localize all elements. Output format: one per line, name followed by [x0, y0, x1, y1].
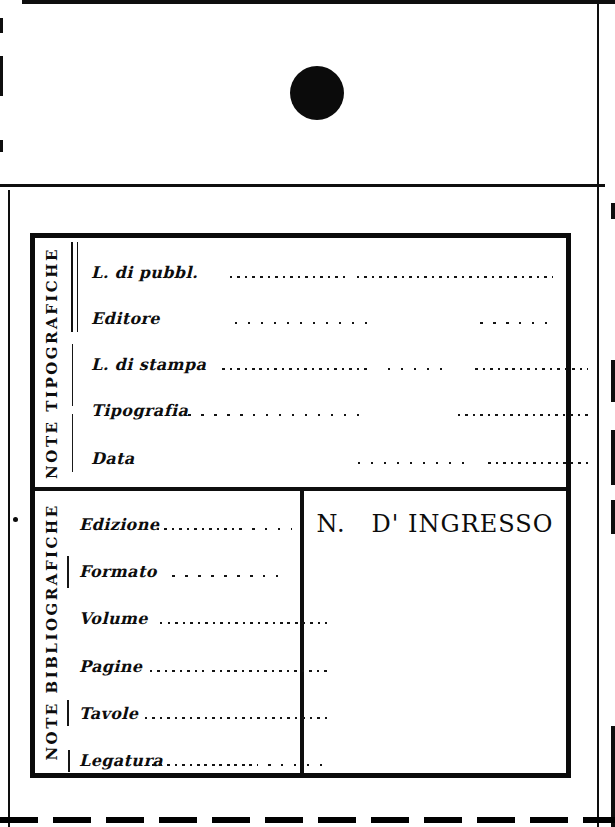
field-label-volume: Volume [79, 609, 148, 628]
field-label-tipografia: Tipografia [91, 401, 188, 420]
right-edge-mark [611, 726, 615, 827]
dotted-leader [358, 461, 468, 464]
scanned-catalog-card-page: NOTE TIPOGRAFICHE L. di pubbl. Editore L… [0, 0, 615, 827]
right-edge-mark [611, 203, 615, 219]
dotted-leader [188, 413, 365, 416]
left-edge-mark [0, 140, 3, 152]
dotted-leader [458, 413, 588, 416]
numero-ingresso-heading: N. D' INGRESSO [305, 510, 565, 538]
bottom-edge-tear-line [0, 817, 615, 823]
dotted-leader [235, 321, 378, 324]
dotted-leader [145, 716, 327, 719]
field-label-legatura: Legatura [79, 751, 163, 770]
dotted-leader [230, 275, 347, 278]
field-label-tavole: Tavole [79, 704, 138, 723]
right-edge-mark [611, 430, 615, 485]
rule-fragment [68, 750, 70, 772]
dotted-leader [357, 275, 553, 278]
dotted-leader [475, 367, 588, 370]
column-divider-line [300, 491, 304, 773]
dotted-leader [222, 367, 372, 370]
dotted-leader [488, 461, 588, 464]
dotted-leader [212, 669, 327, 672]
catalog-card: NOTE TIPOGRAFICHE L. di pubbl. Editore L… [30, 233, 571, 778]
ink-speck [13, 517, 18, 522]
double-rule-segment [72, 344, 75, 406]
dotted-leader [150, 669, 204, 672]
rule-fragment [67, 556, 69, 588]
double-rule [71, 242, 78, 332]
field-label-luogo-stampa: L. di stampa [91, 355, 206, 374]
horizontal-rule [0, 184, 605, 187]
double-rule-segment [72, 414, 74, 472]
dotted-leader [152, 763, 258, 766]
punch-hole [290, 66, 344, 120]
left-page-edge-line [8, 190, 10, 827]
dotted-leader [268, 763, 327, 766]
section-side-label: NOTE BIBLIOGRAFICHE [43, 503, 61, 760]
side-label-box-bibliografiche: NOTE BIBLIOGRAFICHE [35, 491, 69, 773]
field-label-editore: Editore [91, 309, 160, 328]
field-label-formato: Formato [79, 562, 157, 581]
dotted-leader [157, 527, 245, 530]
left-edge-mark [0, 56, 3, 96]
rule-fragment [67, 700, 69, 726]
left-edge-mark [0, 18, 3, 33]
right-edge-mark [611, 500, 615, 534]
field-label-edizione: Edizione [79, 515, 159, 534]
dotted-leader [160, 621, 327, 624]
side-label-box-tipografiche: NOTE TIPOGRAFICHE [35, 238, 69, 488]
field-label-data: Data [91, 449, 135, 468]
right-edge-mark [611, 360, 615, 402]
dotted-leader [252, 527, 292, 530]
section-side-label: NOTE TIPOGRAFICHE [43, 247, 61, 479]
top-edge-scan-line [22, 0, 615, 4]
field-label-luogo-pubblicazione: L. di pubbl. [91, 263, 198, 282]
page-fold-line [597, 0, 599, 827]
dotted-leader [388, 367, 448, 370]
dotted-leader [172, 574, 288, 577]
dotted-leader [480, 321, 548, 324]
field-label-pagine: Pagine [79, 657, 142, 676]
